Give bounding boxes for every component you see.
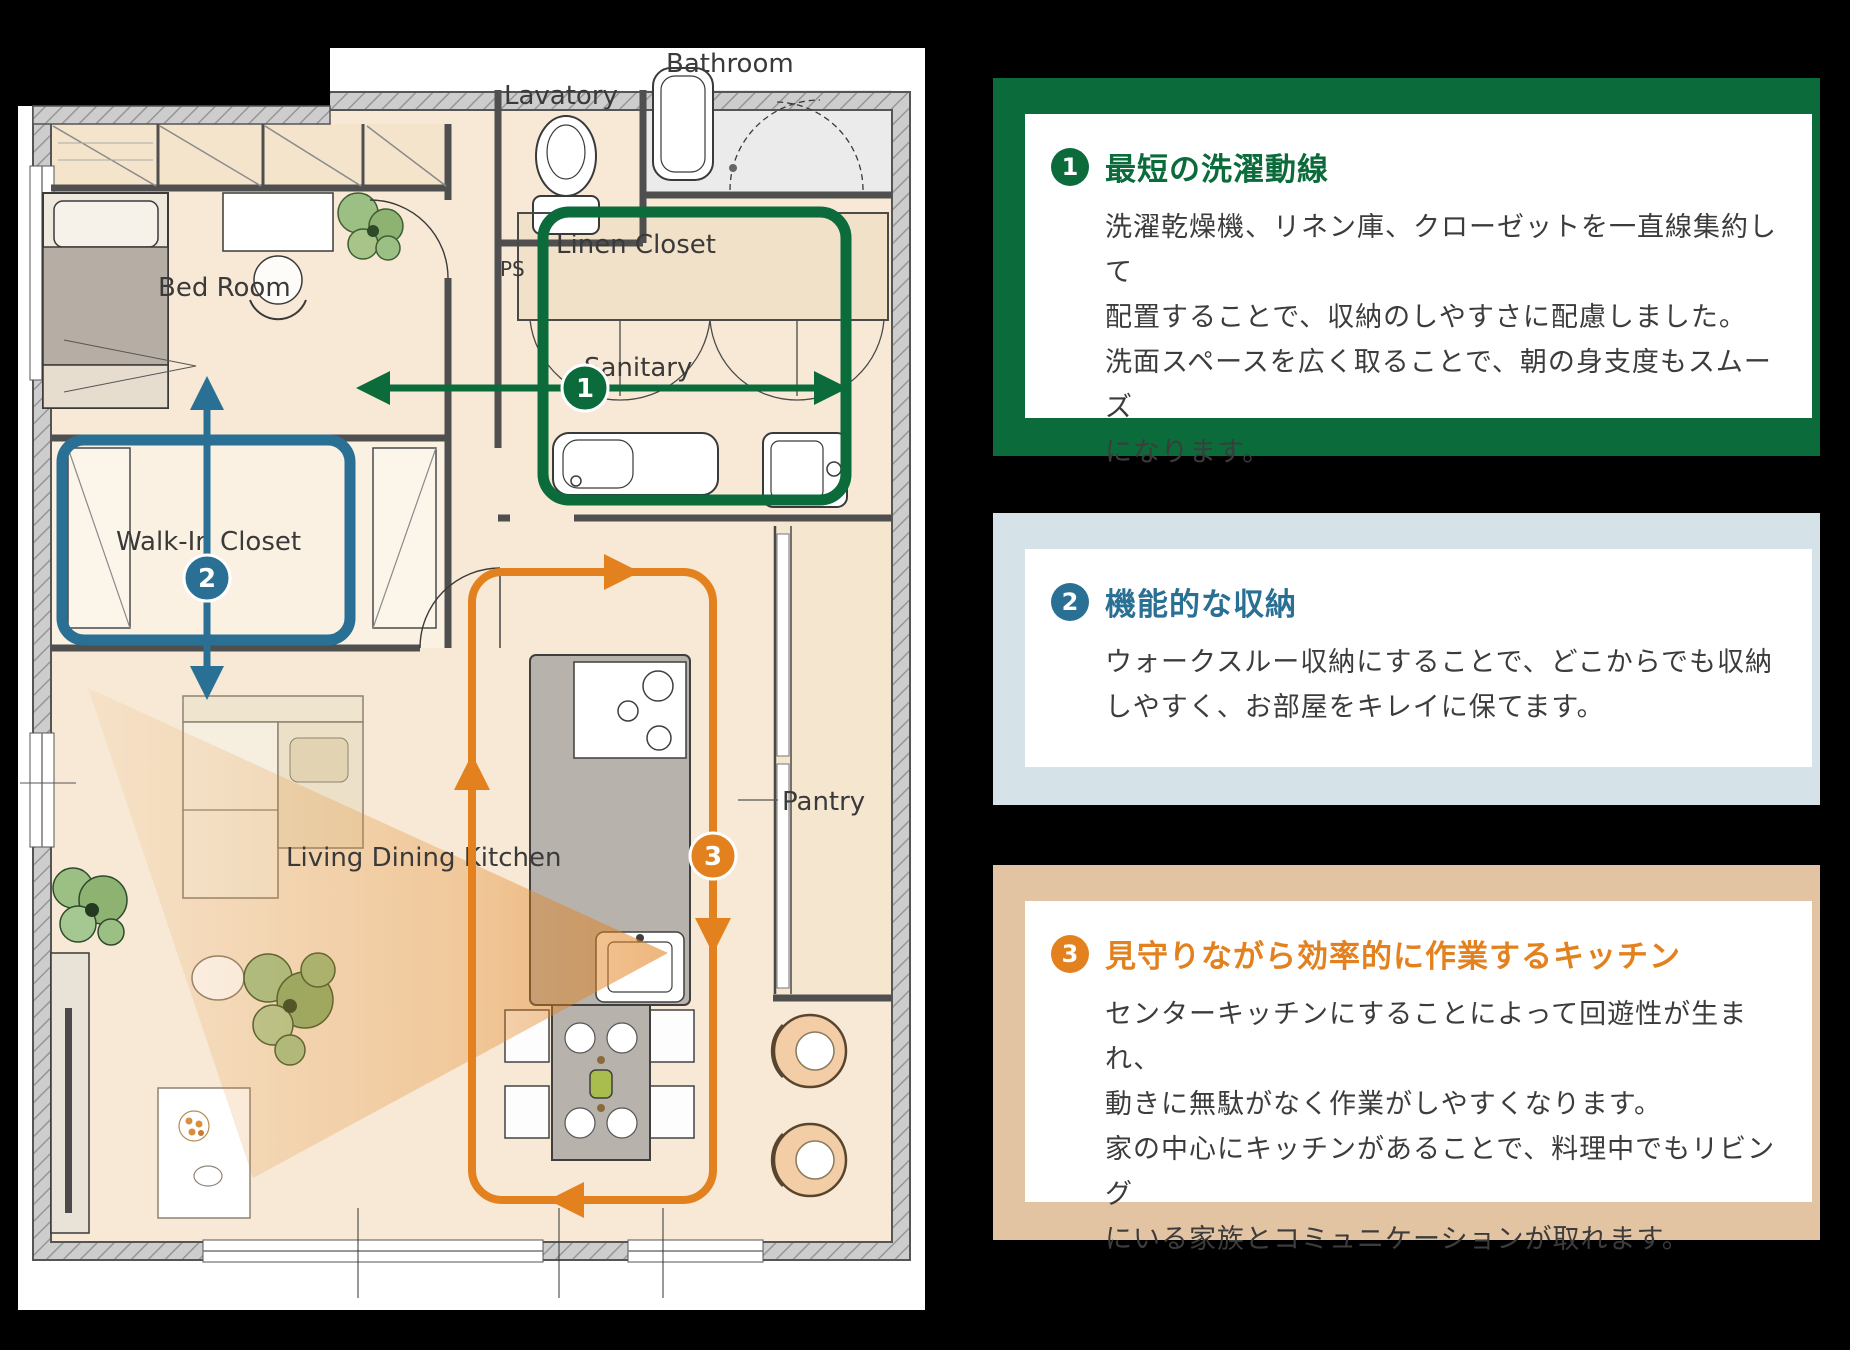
card-2-title: 機能的な収納 xyxy=(1105,579,1297,624)
route-3-badge: 3 xyxy=(704,842,722,872)
label-ldk: Living Dining Kitchen xyxy=(286,843,561,873)
label-bedroom: Bed Room xyxy=(158,273,291,303)
label-ps: PS xyxy=(500,257,525,281)
card-2-text: ウォークスルー収納にすることで、どこからでも収納 しやすく、お部屋をキレイに保て… xyxy=(1105,640,1788,730)
feature-card-laundry: 1 最短の洗濯動線 洗濯乾燥機、リネン庫、クローゼットを一直線集約して 配置する… xyxy=(993,78,1820,456)
card-2-number-badge: 2 xyxy=(1051,583,1089,621)
card-1-number-badge: 1 xyxy=(1051,148,1089,186)
card-3-number-badge: 3 xyxy=(1051,935,1089,973)
feature-card-kitchen: 3 見守りながら効率的に作業するキッチン センターキッチンにすることによって回遊… xyxy=(993,865,1820,1240)
floor-plan-drawing: Bed Room Walk-In Closet Lavatory Bathroo… xyxy=(18,48,925,1310)
route-2-badge: 2 xyxy=(198,564,216,594)
label-lavatory: Lavatory xyxy=(504,81,618,111)
label-linen: Linen Closet xyxy=(556,230,716,260)
living-plant-left xyxy=(53,868,127,945)
floor-plan: Bed Room Walk-In Closet Lavatory Bathroo… xyxy=(18,48,925,1310)
card-3-body: 3 見守りながら効率的に作業するキッチン センターキッチンにすることによって回遊… xyxy=(1025,901,1812,1202)
route-1-badge: 1 xyxy=(576,374,594,404)
feature-card-storage: 2 機能的な収納 ウォークスルー収納にすることで、どこからでも収納 しやすく、お… xyxy=(993,513,1820,805)
label-bathroom: Bathroom xyxy=(666,49,794,79)
card-1-body: 1 最短の洗濯動線 洗濯乾燥機、リネン庫、クローゼットを一直線集約して 配置する… xyxy=(1025,114,1812,418)
card-3-title: 見守りながら効率的に作業するキッチン xyxy=(1105,931,1681,976)
infographic-canvas: Bed Room Walk-In Closet Lavatory Bathroo… xyxy=(0,0,1850,1350)
card-2-body: 2 機能的な収納 ウォークスルー収納にすることで、どこからでも収納 しやすく、お… xyxy=(1025,549,1812,767)
card-3-text: センターキッチンにすることによって回遊性が生まれ、 動きに無駄がなく作業がしやす… xyxy=(1105,992,1788,1262)
label-pantry: Pantry xyxy=(782,787,865,817)
card-1-title: 最短の洗濯動線 xyxy=(1105,144,1329,189)
card-1-text: 洗濯乾燥機、リネン庫、クローゼットを一直線集約して 配置することで、収納のしやす… xyxy=(1105,205,1788,475)
